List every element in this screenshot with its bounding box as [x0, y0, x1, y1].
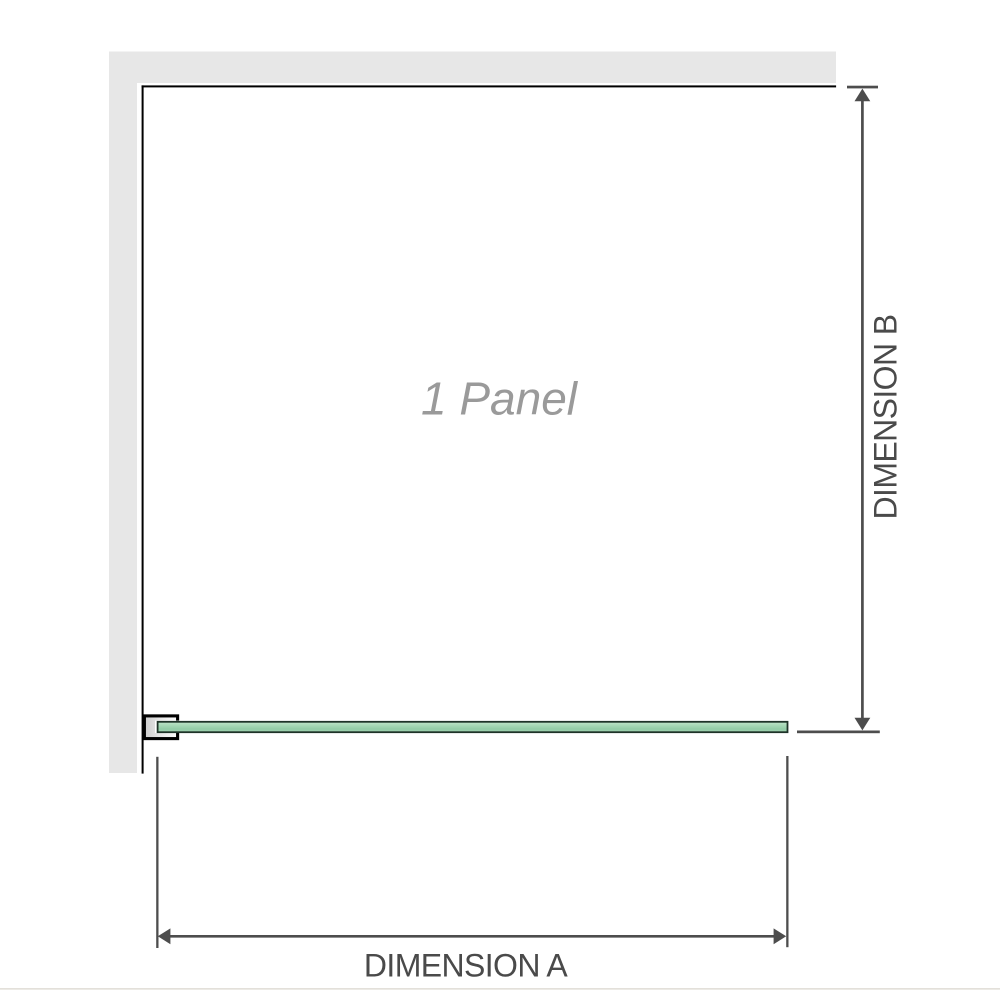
svg-text:DIMENSION B: DIMENSION B [868, 315, 904, 520]
svg-text:1 Panel: 1 Panel [421, 373, 579, 425]
svg-text:DIMENSION A: DIMENSION A [364, 948, 568, 984]
